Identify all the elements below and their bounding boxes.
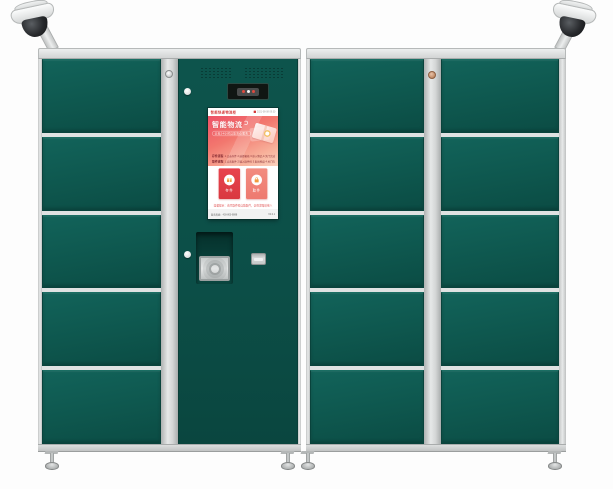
action-cards: 存件 取件 xyxy=(208,166,278,202)
screen-banner: 智能物流 全天24小时自助寄存服务 存件流程1.点击存件 2.选择箱格 3.放入… xyxy=(208,116,278,166)
screen-tip: 温馨提示：请凭取件码自助取件，切勿泄露给他人 xyxy=(208,202,278,210)
locker-door[interactable] xyxy=(441,292,559,366)
banner-badge: 全天24小时自助寄存服务 xyxy=(212,131,251,136)
usage-steps: 存件流程1.点击存件 2.选择箱格 3.放入物品 4.关门完成 取件流程1.点击… xyxy=(212,153,275,164)
banner-title: 智能物流 xyxy=(212,119,243,129)
left-door-column xyxy=(42,59,161,444)
screen-header: 智能快递物流柜 2021-08-08 09:30 xyxy=(208,108,278,116)
kiosk-touchscreen[interactable]: 智能快递物流柜 2021-08-08 09:30 智能物流 全天24小时自助寄存… xyxy=(208,108,278,219)
screen-brand: 智能快递物流柜 xyxy=(211,109,237,114)
seal-icon xyxy=(263,129,271,137)
hinge-strip xyxy=(161,59,178,444)
step-text: 1.点击取件 2.输入取件码 3.取出物品 4.关门完成 xyxy=(225,160,275,163)
locker-door[interactable] xyxy=(441,137,559,211)
hinge-strip xyxy=(424,59,441,444)
scanner-ring-icon xyxy=(211,265,219,273)
deposit-label: 存件 xyxy=(225,188,233,193)
left-cabinet-top xyxy=(38,48,301,59)
right-door-column-1 xyxy=(310,59,424,444)
locker-door[interactable] xyxy=(42,59,161,133)
locker-door[interactable] xyxy=(441,370,559,444)
step-text: 1.点击存件 2.选择箱格 3.放入物品 4.关门完成 xyxy=(225,155,275,158)
barcode-scanner-window xyxy=(199,256,230,281)
locker-door[interactable] xyxy=(310,292,424,366)
scanner-recess xyxy=(196,232,233,284)
locker-door[interactable] xyxy=(42,292,161,366)
screen-datetime: 2021-08-08 09:30 xyxy=(257,111,275,113)
ic-card-slot xyxy=(251,253,266,265)
locker-door[interactable] xyxy=(42,137,161,211)
leveling-foot xyxy=(280,452,296,470)
deposit-box-icon xyxy=(227,178,232,182)
leveling-foot xyxy=(300,452,316,470)
deposit-button[interactable]: 存件 xyxy=(219,168,240,199)
left-cabinet-base xyxy=(38,444,301,452)
key-lock xyxy=(184,88,191,95)
step-label: 存件流程 xyxy=(212,154,223,157)
face-camera-window xyxy=(227,83,269,100)
key-lock xyxy=(184,251,191,258)
locker-door[interactable] xyxy=(441,215,559,289)
leveling-foot xyxy=(547,452,563,470)
pickup-label: 取件 xyxy=(253,188,261,193)
right-door-column-2 xyxy=(441,59,559,444)
footer-hotline: 服务热线：400-800-8888 xyxy=(211,213,237,216)
smart-locker-photo: 智能快递物流柜 2021-08-08 09:30 智能物流 全天24小时自助寄存… xyxy=(0,0,613,489)
locker-door[interactable] xyxy=(310,137,424,211)
speaker-grille-icon xyxy=(200,67,233,79)
right-cabinet-base xyxy=(306,444,566,452)
locker-door[interactable] xyxy=(42,370,161,444)
locker-door[interactable] xyxy=(310,370,424,444)
cctv-dome-camera-icon xyxy=(548,0,599,43)
pickup-lock-icon xyxy=(255,179,259,182)
locker-door[interactable] xyxy=(310,59,424,133)
logo-icon xyxy=(254,111,256,113)
pickup-button[interactable]: 取件 xyxy=(246,168,267,199)
icon-circle xyxy=(251,175,262,186)
speaker-grille-icon xyxy=(244,67,284,79)
camera-lens xyxy=(557,15,586,39)
camera-led-icon xyxy=(237,88,259,96)
right-cabinet-top xyxy=(306,48,566,59)
locker-door[interactable] xyxy=(42,215,161,289)
key-lock xyxy=(165,70,173,78)
locker-door[interactable] xyxy=(441,59,559,133)
cabinet-frame xyxy=(298,59,301,444)
locker-door[interactable] xyxy=(310,215,424,289)
camera-lens xyxy=(21,15,50,39)
swirl-icon xyxy=(244,121,248,125)
footer-version: V2.0.1 xyxy=(268,213,275,215)
leveling-foot xyxy=(44,452,60,470)
icon-circle xyxy=(224,175,235,186)
key-lock xyxy=(428,71,436,79)
cabinet-frame xyxy=(559,59,566,444)
screen-footer: 服务热线：400-800-8888 V2.0.1 xyxy=(208,210,278,219)
step-label: 取件流程 xyxy=(212,160,223,163)
